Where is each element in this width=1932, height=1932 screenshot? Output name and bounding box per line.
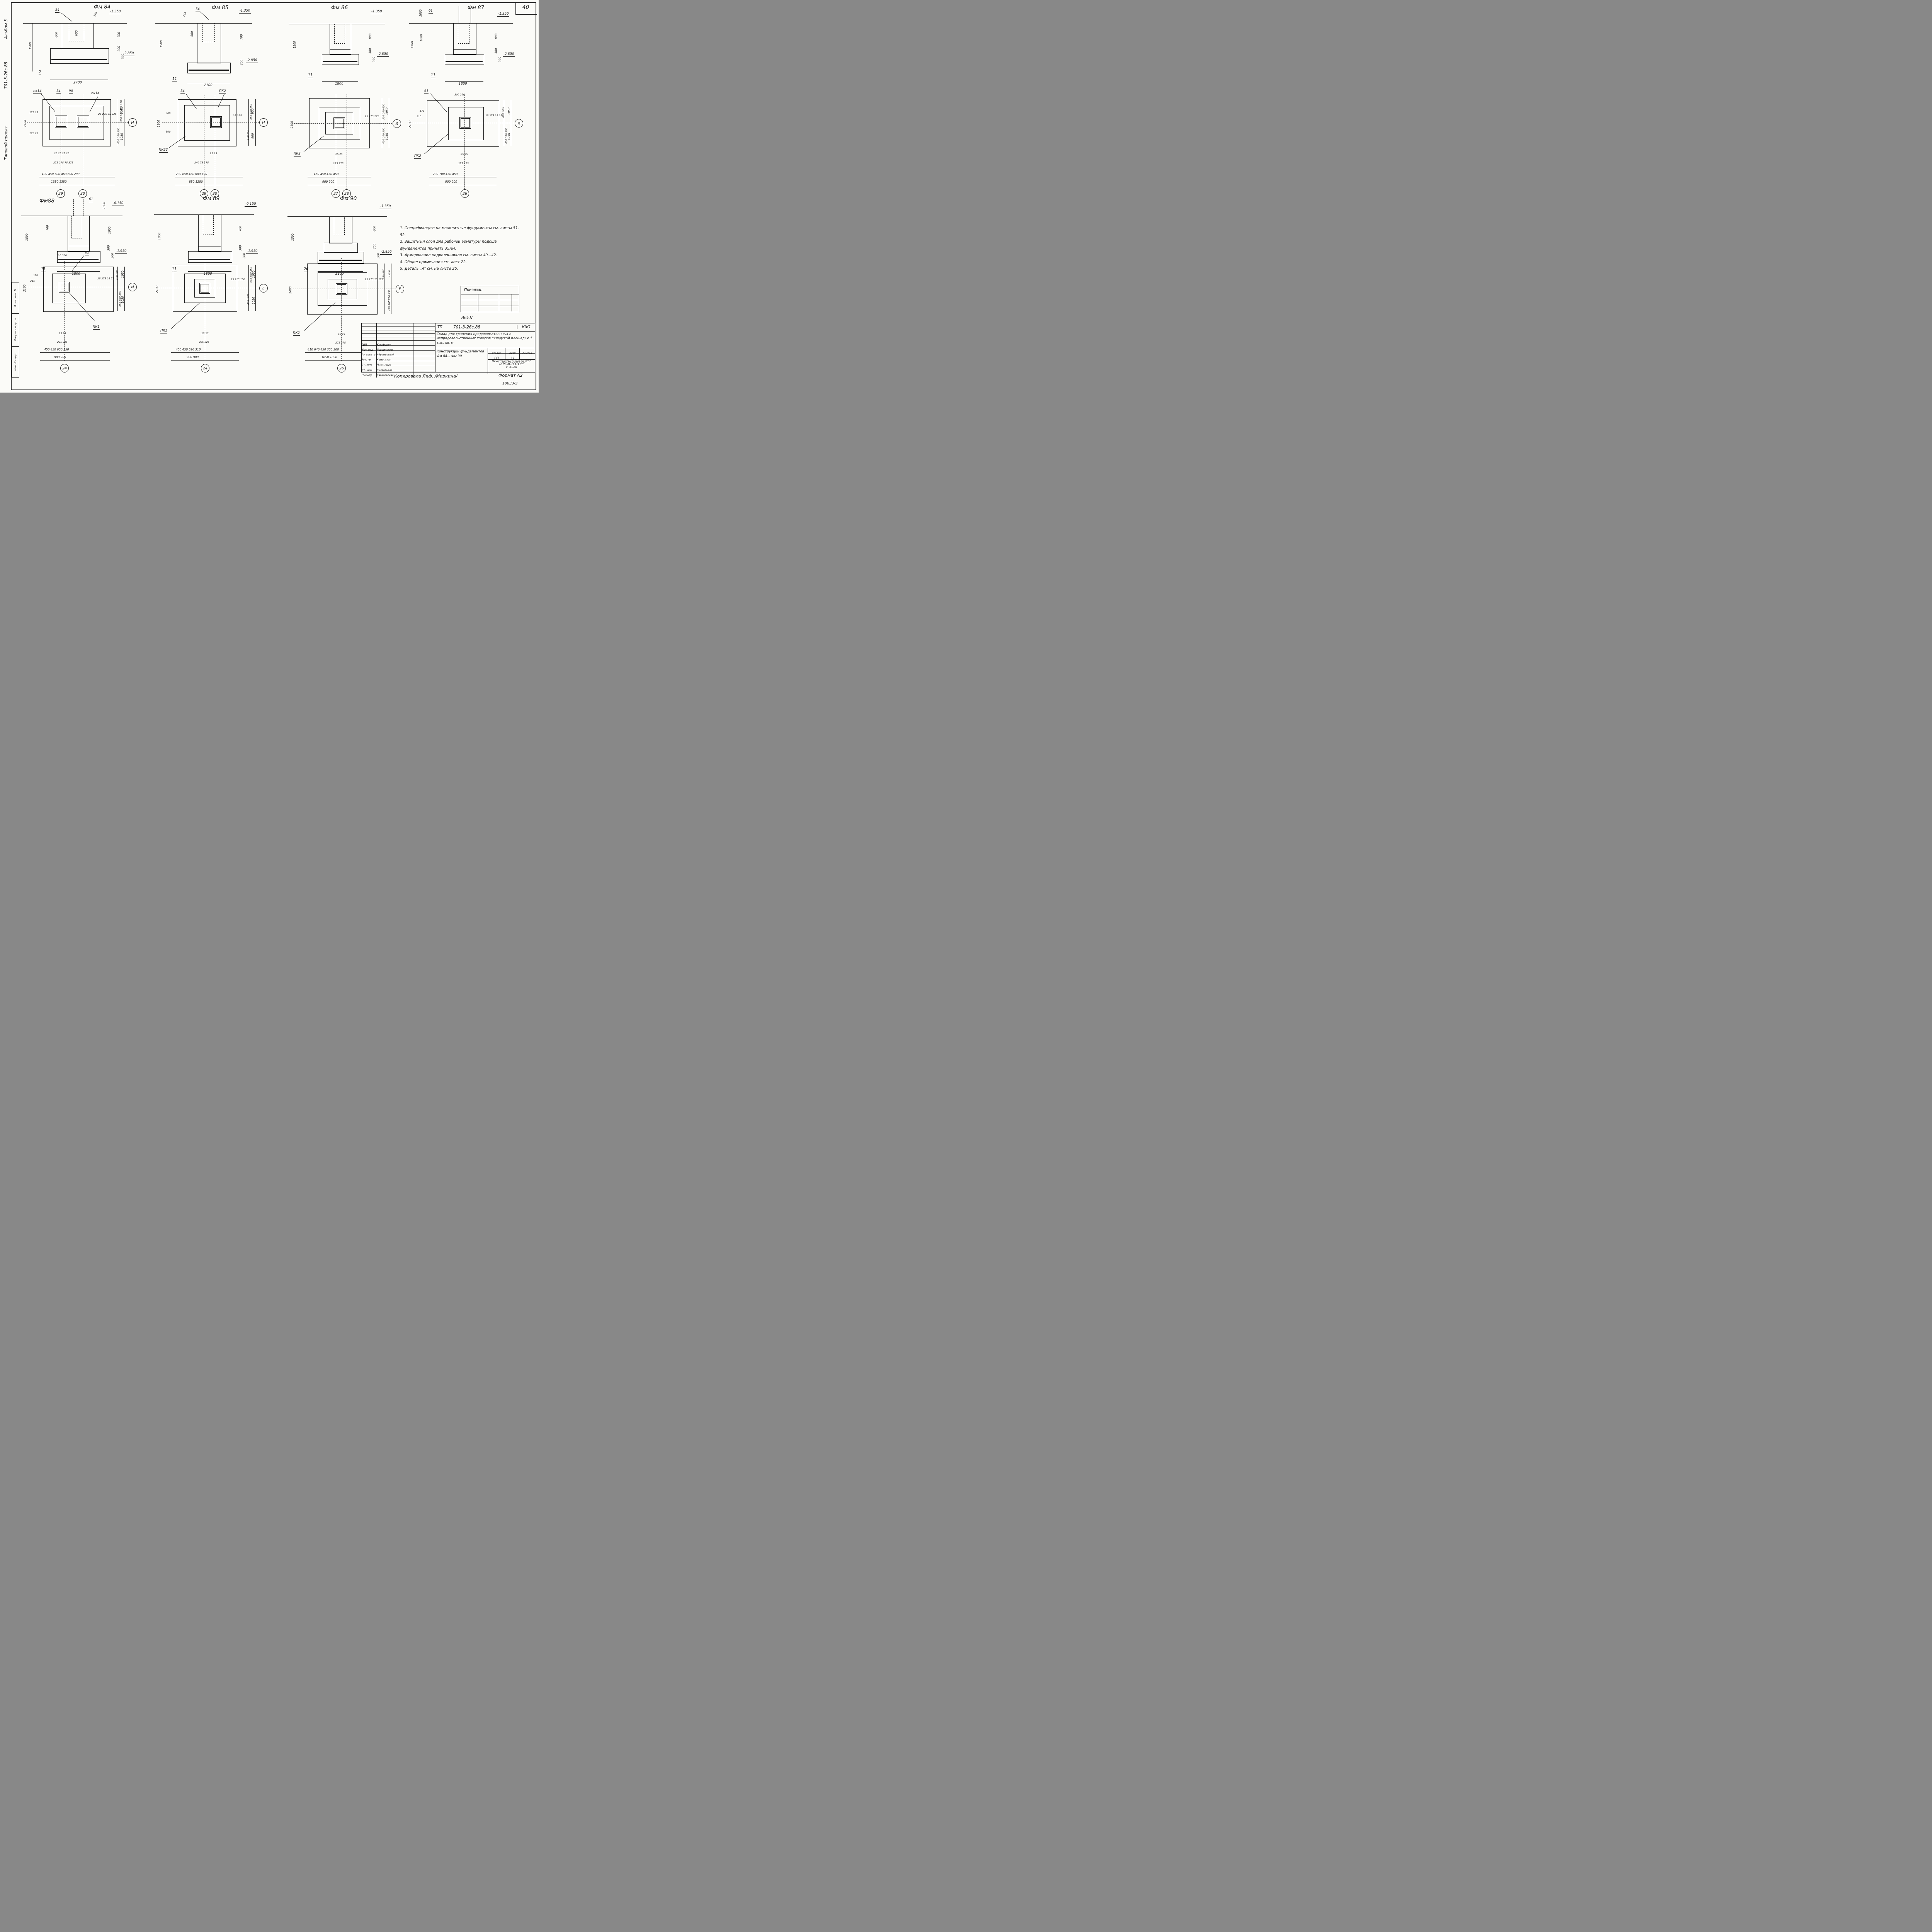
axis-circle: И	[128, 118, 137, 127]
binding-header: Привязан	[461, 286, 519, 294]
sheet-title: Конструкции фундаментов Фм 84... Фм 90	[437, 350, 486, 359]
note-line: 5. Деталь „А" см. на листе 25.	[400, 265, 524, 272]
dim-line	[308, 185, 371, 185]
dim: 1500	[291, 233, 294, 241]
dim: 300	[166, 131, 170, 133]
leader-mark: ПК2	[293, 332, 300, 336]
leader-mark: ПК2	[294, 152, 301, 156]
leader-mark: 54	[180, 90, 185, 94]
dim: 800	[55, 32, 58, 37]
dim-line	[504, 100, 504, 146]
copied-by: Копировала Лиф. /Миркина/	[394, 374, 457, 378]
axis-circle: И	[515, 119, 523, 128]
centerline	[27, 287, 130, 287]
plan-fm89: ПК1 2100 25 25 225 225 450 450 590 310 9…	[149, 251, 265, 375]
note-line: 3. Армирование подколонников см. листы 4…	[400, 252, 524, 259]
section-title: Фм 90	[340, 196, 357, 202]
dim-line	[384, 264, 384, 314]
section-fm85: Фм 85 1500 110 54 600 -1.350 700 300 -2.…	[151, 4, 259, 88]
dim: 275 25	[29, 132, 38, 135]
dim: 1000	[419, 9, 422, 17]
project-code: 701-3-26с.88	[453, 325, 480, 330]
dim-line	[391, 264, 391, 314]
dim: 600	[190, 31, 194, 37]
sheet-title-cell: Конструкции фундаментов Фм 84... Фм 90	[435, 348, 488, 374]
column-glass	[203, 214, 214, 235]
elevation: -0.150	[245, 202, 257, 207]
centerline	[205, 260, 205, 361]
binding-table: Привязан	[461, 286, 519, 312]
organization-cell: Министерство торговли УССР УКРГИПРОТОРГ …	[488, 360, 535, 374]
binding-row	[461, 294, 519, 300]
dim: 2100	[204, 84, 213, 87]
elevation: -0.150	[112, 202, 124, 206]
dim-line	[255, 99, 256, 146]
rebar-line	[189, 70, 229, 71]
margin-code: 701-3-26с.88	[4, 62, 9, 89]
dim: 300	[117, 46, 121, 51]
centerline	[294, 123, 394, 124]
dim: 25 25	[201, 332, 209, 335]
section-fm84: Фм 84 1500 800 600 54 110 -1.350 700 300…	[17, 4, 133, 88]
pedestal-outline	[184, 105, 230, 141]
dim: 1500	[29, 42, 32, 49]
axis-label: Н	[262, 121, 265, 125]
note-line: 1. Спецификацию на монолитные фундаменты…	[400, 225, 524, 238]
dim: 2100	[156, 286, 159, 293]
rebar-line	[323, 61, 357, 62]
binding-row	[461, 306, 519, 311]
joint-line	[198, 247, 221, 247]
dim: 450 300 300	[382, 128, 385, 144]
plan-fm85: 54 ПК2 ПК22 1800 300 300 25 25 240 75 37…	[149, 90, 265, 206]
dim: 25 25	[461, 153, 468, 156]
axis-circle: Е	[259, 284, 268, 293]
dim: 25 225	[233, 114, 242, 117]
dim: 200 650 460 600 190	[176, 173, 207, 176]
tp-label: ТП	[437, 325, 442, 329]
dim: 450 450 450 450	[314, 173, 338, 176]
dim-line	[124, 99, 124, 146]
section-title: Фм 84	[94, 5, 111, 10]
dim: 110	[94, 12, 98, 17]
dim: 1050	[508, 107, 511, 115]
dim: 410 640 450 300 300	[308, 348, 339, 351]
axis-circle: 24	[201, 364, 209, 372]
notes-block: 1. Спецификацию на монолитные фундаменты…	[400, 225, 524, 272]
binding-row	[461, 300, 519, 306]
dim: 450 450 650 250	[44, 348, 69, 351]
section-fm86: Фм 86 1500 -1.350 800 300 300 -2.850 11 …	[284, 4, 392, 88]
leader-mark: ПК2	[414, 155, 421, 159]
leader-mark: пк14	[33, 90, 42, 94]
dim-line	[117, 267, 118, 311]
elevation: -1.350	[379, 205, 391, 209]
dim: 1800	[459, 82, 467, 86]
dim-line	[255, 265, 256, 311]
centerline	[27, 122, 128, 122]
section-fm87: Фм 87 1000 61 1500 1000 -1.350 800 300 3…	[404, 3, 522, 88]
dim-line	[382, 98, 382, 148]
dim-line	[322, 81, 358, 82]
dim: 25 25	[59, 332, 66, 335]
dim: 300	[373, 244, 376, 249]
dim: 25 25	[338, 333, 345, 336]
note-line: 2. Защитный слой для рабочей арматуры по…	[400, 238, 524, 252]
dim: 300 300 450	[382, 104, 385, 120]
elevation: -2.850	[503, 53, 515, 57]
leader-mark: ПК1	[93, 325, 100, 330]
centerline	[215, 95, 215, 189]
dim: 1800	[157, 120, 160, 127]
dim: 1800	[26, 233, 29, 241]
binding-label: Привязан	[464, 288, 483, 292]
leader-mark: 61	[424, 90, 429, 94]
dim: 25 275 25 275	[485, 114, 504, 117]
plan-fm87: 61 300 290 ПК2 2100 170 315 25 25 275 27…	[402, 90, 522, 206]
dim: 1500	[160, 40, 163, 48]
detail-ref: 11	[431, 73, 435, 78]
role: Н.контр	[362, 374, 372, 377]
section-title: Фм 85	[212, 5, 228, 11]
footing-slab	[187, 63, 231, 73]
dim: 700	[239, 226, 242, 231]
axis-label: 24	[62, 366, 67, 371]
dim: 700	[117, 32, 121, 37]
joint-line	[68, 246, 89, 246]
dim: 900 900	[187, 356, 199, 359]
detail-ref: 11	[308, 73, 313, 78]
axis-label: И	[517, 121, 520, 126]
dim: 1500	[293, 41, 296, 48]
column-outline	[56, 117, 66, 127]
dim: 300	[498, 57, 502, 62]
org-city: г. Киев	[488, 366, 535, 369]
centerline	[464, 95, 465, 189]
joint-line	[330, 49, 350, 50]
dim: 225 225	[57, 341, 68, 344]
dim: 450 300 300	[117, 128, 120, 144]
dim: 300	[240, 60, 243, 65]
elevation: -1.350	[371, 10, 383, 14]
dim: 1000	[103, 202, 106, 209]
centerline	[159, 288, 259, 288]
axis-label: 24	[203, 366, 207, 371]
dim: 1050	[508, 133, 511, 140]
dim: 850 1250	[189, 180, 203, 184]
sheet-number: 40	[522, 5, 529, 10]
dim: 600	[75, 31, 78, 36]
dim: 110	[183, 12, 187, 17]
dim-line	[171, 360, 239, 361]
dim: 1350 1350	[51, 180, 67, 184]
column-glass	[202, 23, 215, 42]
inventory-label: Инв.N	[461, 316, 473, 320]
dim-line	[40, 360, 110, 361]
dim: 300	[372, 57, 376, 62]
dim-line	[445, 81, 483, 82]
dim: 1050	[252, 270, 255, 278]
centerline	[347, 94, 347, 189]
precast-column	[73, 199, 83, 216]
dim: 225 225	[199, 341, 209, 344]
dim: 450 450 590 310	[176, 348, 201, 351]
dim: 300	[495, 48, 498, 54]
elevation: -1.350	[239, 9, 251, 14]
plan-fm84: пк14 54 90 пк14 2100 275 25 275 25 25 25…	[15, 90, 137, 206]
centerline	[83, 94, 83, 189]
footing-slab	[445, 54, 484, 65]
dim-line	[175, 185, 243, 185]
column-outline	[78, 117, 88, 127]
dim-line	[248, 265, 249, 311]
dim: 1000	[420, 34, 423, 41]
margin-album: Альбом 3	[4, 19, 9, 39]
dim: 25 275 275	[365, 115, 379, 118]
section-title: Фм 86	[331, 5, 348, 11]
centerline	[64, 261, 65, 361]
precast-column	[459, 6, 471, 23]
centerline	[293, 289, 396, 289]
section-title: Фм88	[39, 199, 54, 204]
note-line: 4. Общие примечания см. лист 22.	[400, 259, 524, 266]
dim: 1050	[121, 296, 124, 303]
dim: 275 275 75 375	[53, 162, 73, 164]
dim: 900 900	[322, 180, 334, 184]
axis-circle: Е	[396, 285, 404, 293]
dim: 25 25	[335, 153, 343, 156]
dim: 2100	[23, 284, 26, 292]
dim: 900 900	[54, 356, 66, 359]
drawing-sheet: 40 Альбом 3 701-3-26с.88 Типовой проект …	[0, 0, 539, 393]
title-block-left: ГИП Юзефович Нач. отд Лавриненко Гл. кон…	[362, 323, 435, 372]
dim: 1050	[386, 133, 389, 140]
dim-line	[39, 177, 115, 177]
column-glass	[334, 24, 345, 44]
dim: 25 275 25 75	[97, 277, 114, 280]
rebar-line	[446, 61, 483, 62]
dim-line	[187, 83, 230, 83]
dim: 1050	[121, 107, 124, 114]
format-label: Формат А2	[498, 373, 523, 378]
axis-circle: 26	[337, 364, 346, 372]
axis-label: И	[131, 121, 134, 125]
dim: 700	[240, 34, 243, 40]
dim: 300	[369, 48, 372, 54]
name: Кагановская	[377, 374, 393, 377]
leader-mark: 61	[429, 9, 433, 14]
dim: 900	[251, 133, 254, 139]
dim: 25 225 150	[231, 278, 245, 281]
dim-line	[171, 352, 239, 353]
leader-mark: 54	[56, 90, 61, 94]
pedestal-outline	[52, 274, 86, 303]
dim: 240 75 375	[194, 162, 209, 164]
column-glass	[334, 216, 345, 235]
dim: 800	[369, 34, 372, 39]
dim: 275 275	[333, 162, 344, 165]
dim: 400 450 500 460 600 290	[42, 173, 80, 176]
elevation: -2.850	[377, 53, 389, 57]
column-outline	[337, 284, 346, 294]
detail-ref: 2	[39, 70, 41, 75]
dim: 300	[166, 112, 170, 115]
column-glass	[71, 216, 82, 238]
leader-mark: 61	[89, 198, 93, 202]
dim: 1050	[121, 133, 124, 140]
dim-line	[429, 177, 497, 177]
leader-mark: ПК1	[160, 329, 167, 333]
plan-fm88: 210 300 61 ПК1 2100 170 315 25 25 225 22…	[15, 251, 137, 375]
elevation: -1.350	[497, 12, 509, 17]
title-block-right: ТП 701-3-26с.88 КЖ1 Склад для хранения п…	[435, 323, 535, 372]
dim: 2700	[73, 81, 82, 85]
dim-line	[39, 185, 115, 185]
doc-number: 10033/3	[502, 382, 517, 386]
dim: 2400	[289, 286, 292, 294]
dim: 200 700 450 450	[433, 173, 457, 176]
dim: 275 25	[29, 111, 38, 114]
column-glass	[458, 23, 469, 44]
mark-code: КЖ1	[517, 325, 531, 329]
axis-label: 26	[339, 366, 344, 371]
dim: 900 900	[445, 180, 457, 184]
dim: 1800	[158, 233, 161, 240]
axis-label: Е	[262, 286, 265, 291]
dim: 2100	[291, 121, 294, 128]
dim: 25 25 25 25	[54, 152, 69, 155]
leader-mark: 61	[85, 251, 89, 255]
object-name: Склад для хранения продовольственных и н…	[437, 332, 533, 345]
footing-slab	[322, 54, 359, 65]
section-title: Фм 89	[203, 196, 219, 202]
dim: 315	[417, 115, 421, 118]
axis-circle: И	[128, 283, 137, 291]
leader-mark: 54	[55, 9, 60, 13]
axis-label: 26	[463, 192, 467, 196]
elevation: -1.350	[109, 10, 121, 14]
dim: 700	[46, 225, 49, 231]
joint-line	[453, 49, 476, 50]
leader-mark: ПК2	[219, 90, 226, 94]
dim: 1200	[388, 298, 391, 305]
dim-line	[389, 98, 389, 148]
elevation: -2.850	[246, 59, 258, 63]
dim: 1050	[252, 297, 255, 304]
elevation: -2.850	[122, 52, 134, 56]
dim-line	[117, 99, 117, 146]
dim: 170	[33, 274, 38, 277]
detail-ref: 11	[172, 77, 177, 82]
rebar-line	[51, 59, 107, 60]
footing-slab	[50, 48, 109, 64]
dim: 1050 1050	[321, 356, 337, 359]
dim: 275 275	[335, 342, 346, 344]
dim: 1500	[411, 41, 414, 48]
axis-label: Е	[399, 287, 401, 291]
dim: 1800	[335, 82, 344, 86]
dim: 1050	[386, 107, 389, 115]
dim-line	[511, 100, 511, 146]
dim-line	[175, 177, 243, 177]
axis-circle: 26	[461, 189, 469, 198]
dim: 315	[30, 280, 35, 282]
dim: 300	[239, 245, 242, 251]
dim: 25 25	[210, 152, 217, 155]
margin-project-type: Типовой проект	[4, 126, 9, 160]
dim: 1200	[388, 270, 391, 277]
dim: 900	[251, 109, 254, 114]
dim: 1050	[121, 270, 124, 278]
dim-line	[248, 99, 249, 146]
plan-fm86: ПК2 2100 25 25 275 275 450 450 450 450 9…	[282, 90, 398, 206]
dim-line	[308, 177, 371, 177]
dim: 1000	[108, 226, 111, 234]
dim-line	[40, 352, 110, 353]
object-name-cell: Склад для хранения продовольственных и н…	[435, 332, 535, 348]
centerline	[162, 122, 259, 122]
leader-mark: 90	[69, 90, 73, 94]
dim-line	[429, 185, 497, 185]
dim: 800	[373, 226, 376, 231]
dim-line	[50, 80, 108, 80]
dim: 300 290	[454, 94, 465, 96]
axis-label: И	[395, 122, 398, 126]
title-block: ГИП Юзефович Нач. отд Лавриненко Гл. кон…	[361, 323, 535, 372]
dim: 2100	[409, 121, 412, 128]
leader-line	[200, 12, 209, 20]
dim: 300	[107, 245, 110, 251]
dim: 275 275	[458, 162, 469, 165]
dim: 25 225 25 225	[98, 113, 117, 116]
centerline	[341, 258, 342, 361]
dim: 170	[420, 110, 424, 112]
dim: 25 275 25 275	[365, 278, 383, 281]
dim: 800	[495, 34, 498, 39]
axis-circle: Н	[259, 118, 268, 127]
axis-circle: 24	[60, 364, 69, 372]
leader-mark: 54	[196, 8, 200, 12]
leader-mark: пк14	[91, 92, 100, 96]
axis-circle: И	[393, 119, 401, 128]
dim: 2100	[24, 120, 27, 127]
leader-mark: ПК22	[159, 148, 168, 153]
leader-line	[61, 12, 73, 22]
ext-line	[32, 23, 32, 71]
axis-label: И	[131, 285, 134, 289]
dim: 210 300	[56, 254, 67, 257]
dim-line	[124, 267, 125, 311]
